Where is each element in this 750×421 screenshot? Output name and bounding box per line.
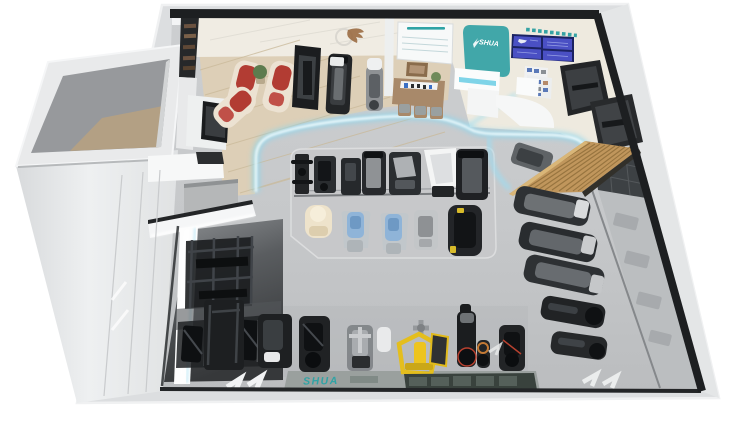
svg-text:SHUA: SHUA <box>303 375 339 388</box>
